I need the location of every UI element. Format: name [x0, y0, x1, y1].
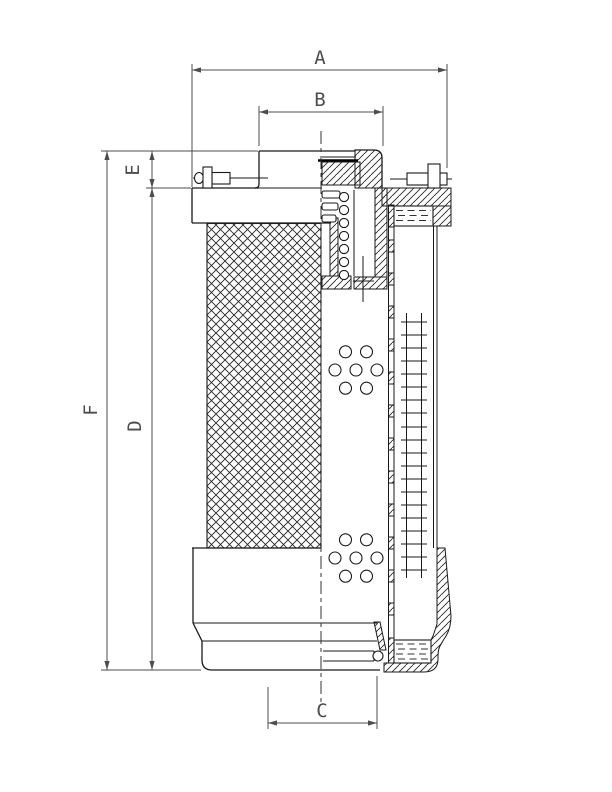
dimension-label-f: F: [80, 404, 102, 415]
filter-media: [207, 224, 321, 549]
top-cap: [255, 150, 382, 188]
dimension-c: C: [268, 676, 377, 729]
dimension-e: E: [122, 151, 155, 188]
housing-bowl-wall: [434, 188, 452, 548]
flange-right-section: [382, 188, 451, 206]
valve-spring: [339, 192, 348, 279]
lower-hole-pattern: [329, 534, 383, 582]
support-spring: [401, 313, 427, 578]
retainer-finger: [322, 215, 336, 222]
right-mounting-bolt: [390, 164, 452, 188]
dimension-d: D: [124, 188, 155, 670]
top-seal-gasket: [389, 205, 434, 227]
bottom-end-cap: [192, 548, 386, 670]
dimension-label-b: B: [314, 89, 325, 111]
seal-retainer-section: [433, 206, 451, 226]
tube-bottom-section: [389, 638, 395, 663]
valve-right-wall: [375, 188, 387, 277]
dimension-label-d: D: [124, 420, 146, 431]
upper-hole-pattern: [329, 346, 383, 394]
valve-left-wall: [330, 218, 338, 276]
bolt-head: [195, 173, 204, 184]
spring-coil-rungs: [401, 322, 427, 570]
tube-wall-section-ticks: [389, 240, 395, 615]
tube-top-section: [389, 205, 395, 227]
cap-skirt-section: [374, 622, 386, 650]
filter-element-cross-section-drawing: A B C E D: [0, 0, 612, 792]
valve-seat-section: [322, 162, 360, 185]
drawing-page: A B C E D: [0, 0, 612, 792]
retainer-finger: [322, 191, 340, 198]
o-ring: [373, 651, 383, 661]
center-tube: [389, 227, 395, 638]
dimension-label-a: A: [314, 47, 326, 69]
dimension-f: F: [80, 151, 110, 670]
valve-right-foot: [354, 277, 387, 289]
bypass-valve-assembly: [322, 188, 387, 302]
dimension-label-e: E: [122, 164, 144, 175]
bottom-seal-gasket: [389, 638, 432, 663]
left-mounting-bolt: [193, 167, 268, 188]
retainer-finger: [322, 203, 338, 210]
dimension-label-c: C: [316, 700, 327, 722]
dimension-a: A: [192, 47, 447, 187]
